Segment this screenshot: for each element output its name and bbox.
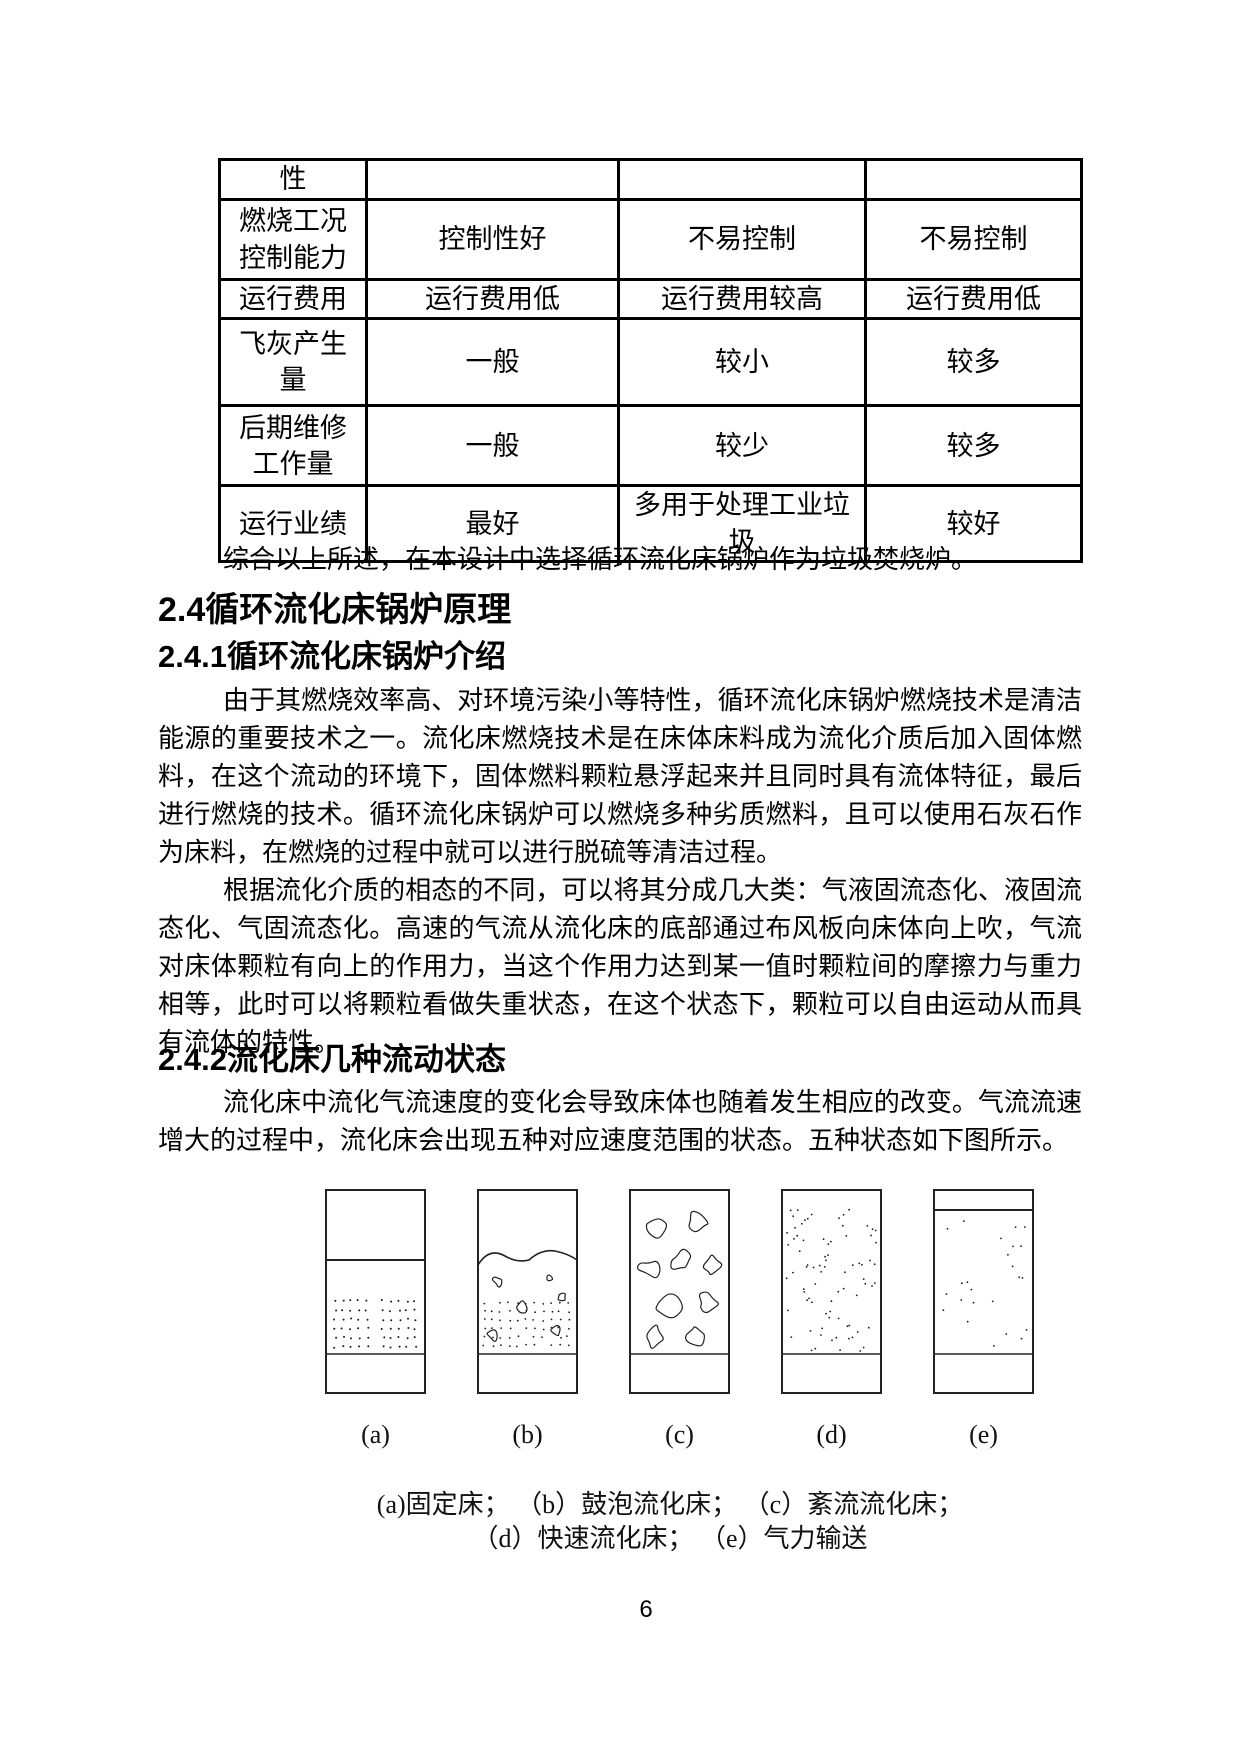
summary-paragraph: 综合以上所述，在本设计中选择循环流化床锅炉作为垃圾焚烧炉。 [158, 541, 1082, 579]
section-heading-2-4-1: 2.4.1循环流化床锅炉介绍 [158, 631, 506, 676]
table-row: 后期维修工作量 一般 较少 较多 [220, 406, 1082, 486]
table-cell: 一般 [367, 406, 619, 486]
table-cell: 不易控制 [866, 200, 1082, 280]
table-cell: 一般 [367, 319, 619, 406]
table-row: 性 [220, 160, 1082, 200]
figure-caption-line-2: （d）快速流化床； （e）气力输送 [290, 1522, 1050, 1556]
table-cell: 不易控制 [619, 200, 866, 280]
figure-panel-pneumatic: (e) [934, 1190, 1033, 1449]
figure-panel-fixed-bed: (a) [326, 1190, 425, 1449]
figure-panel-label: (e) [969, 1420, 998, 1449]
figure-panel-fast: (d) [782, 1190, 881, 1449]
states-paragraph: 流化床中流化气流速度的变化会导致床体也随着发生相应的改变。气流流速增大的过程中，… [158, 1084, 1082, 1160]
table-cell: 运行费用低 [866, 280, 1082, 319]
table-cell [619, 160, 866, 200]
figure-caption: (a)固定床； （b）鼓泡流化床； （c）紊流流化床； （d）快速流化床； （e… [290, 1488, 1050, 1556]
table-cell: 较多 [866, 319, 1082, 406]
table-row: 运行费用 运行费用低 运行费用较高 运行费用低 [220, 280, 1082, 319]
table-cell: 后期维修工作量 [220, 406, 367, 486]
figure-panel-turbulent: (c) [630, 1190, 729, 1449]
table-cell: 较小 [619, 319, 866, 406]
figure-caption-line-1: (a)固定床； （b）鼓泡流化床； （c）紊流流化床； [290, 1488, 1050, 1522]
figure-panel-label: (b) [512, 1420, 542, 1449]
table-cell: 较多 [866, 406, 1082, 486]
figure-panel-label: (a) [361, 1420, 390, 1449]
table-cell: 运行费用较高 [619, 280, 866, 319]
table-cell [866, 160, 1082, 200]
table-cell: 运行费用低 [367, 280, 619, 319]
section-heading-2-4-2: 2.4.2流化床几种流动状态 [158, 1034, 506, 1079]
figure-panel-bubbling: (b) [478, 1190, 577, 1449]
table-row: 飞灰产生量 一般 较小 较多 [220, 319, 1082, 406]
table-cell [367, 160, 619, 200]
intro-paragraph-1: 由于其燃烧效率高、对环境污染小等特性，循环流化床锅炉燃烧技术是清洁能源的重要技术… [158, 682, 1082, 872]
fluidization-states-figure: (a)(b)(c)(d)(e) [325, 1189, 1036, 1464]
document-page: 性 燃烧工况控制能力 控制性好 不易控制 不易控制 运行费用 运行费用低 运行费… [0, 0, 1240, 1754]
table-cell: 运行费用 [220, 280, 367, 319]
table-cell: 燃烧工况控制能力 [220, 200, 367, 280]
fluidization-states-diagram: (a)(b)(c)(d)(e) [325, 1189, 1036, 1459]
figure-panel-label: (c) [665, 1420, 694, 1449]
page-number: 6 [0, 1596, 1240, 1624]
section-heading-2-4: 2.4循环流化床锅炉原理 [158, 582, 511, 631]
table-cell: 性 [220, 160, 367, 200]
figure-panel-label: (d) [816, 1420, 846, 1449]
table-cell: 飞灰产生量 [220, 319, 367, 406]
comparison-table: 性 燃烧工况控制能力 控制性好 不易控制 不易控制 运行费用 运行费用低 运行费… [218, 158, 1083, 563]
table-cell: 较少 [619, 406, 866, 486]
table-row: 燃烧工况控制能力 控制性好 不易控制 不易控制 [220, 200, 1082, 280]
table-cell: 控制性好 [367, 200, 619, 280]
